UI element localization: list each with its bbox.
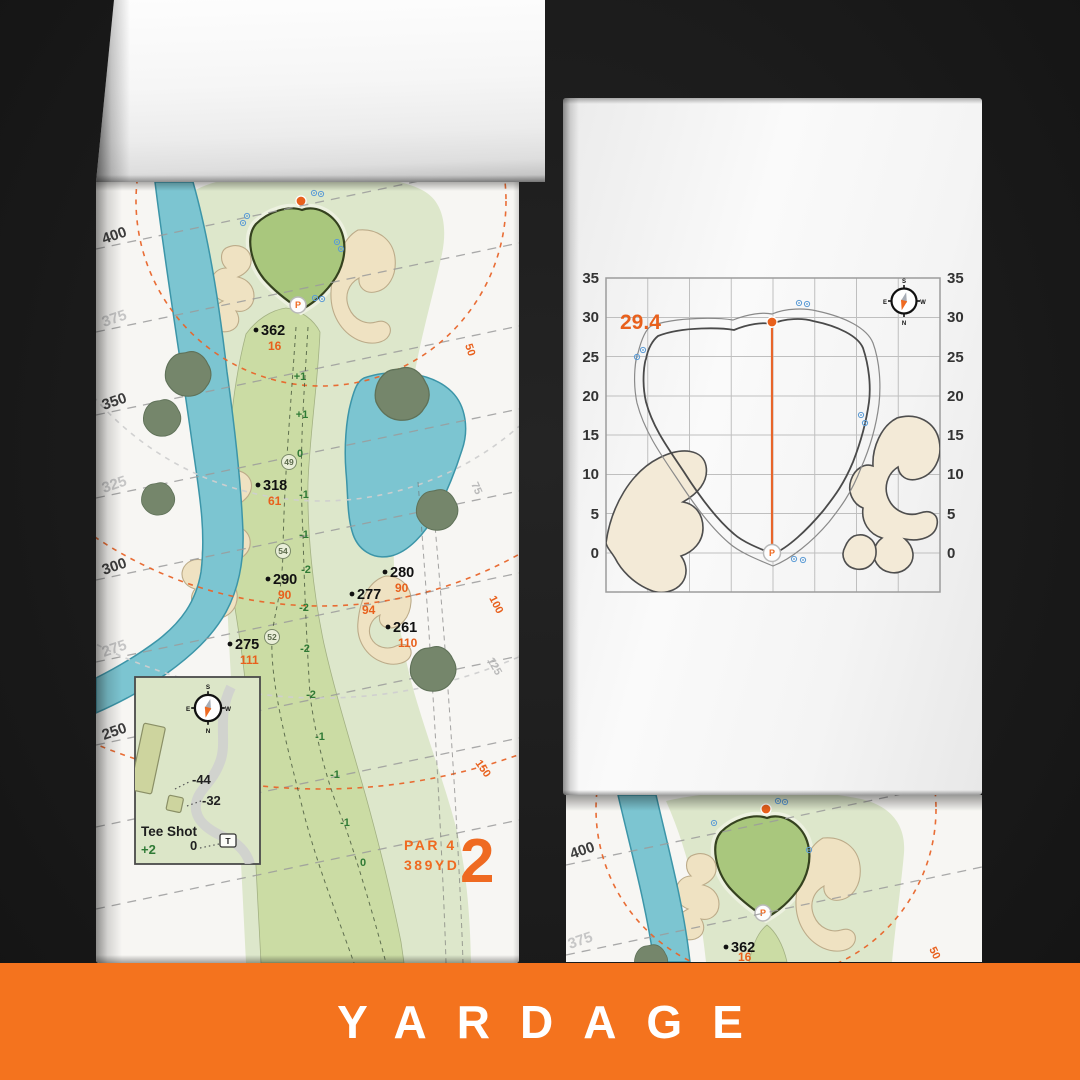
svg-text:52: 52 [267, 632, 277, 642]
left-page-spine-shadow [96, 0, 130, 182]
svg-text:-1: -1 [315, 731, 325, 743]
svg-text:15: 15 [947, 427, 964, 444]
hole-map-page: S N W E [96, 182, 519, 963]
carry-distance: 362 [261, 323, 285, 339]
distance-to-front: 16 [268, 339, 282, 353]
svg-text:+1: +1 [296, 409, 309, 421]
svg-text:-2: -2 [306, 689, 316, 701]
svg-text:0: 0 [297, 448, 303, 460]
distance-to-front: 94 [362, 603, 376, 617]
carry-distance: 275 [235, 637, 259, 653]
svg-text:30: 30 [582, 309, 599, 326]
preview-map: P 400 375 362 16 50 [566, 795, 982, 962]
axis-ticks-left: 35 30 25 20 15 10 5 0 [582, 270, 599, 562]
tee-carry-zero: 0 [190, 838, 197, 853]
svg-text:20: 20 [582, 388, 599, 405]
svg-text:0: 0 [360, 857, 366, 869]
carry-distance: 261 [393, 620, 417, 636]
hole-map: S N W E [96, 182, 519, 963]
tee-carry-back: -44 [192, 772, 212, 787]
svg-text:35: 35 [582, 270, 599, 287]
svg-text:15: 15 [582, 427, 599, 444]
pin-position-label: P [769, 548, 775, 558]
svg-text:25: 25 [947, 349, 964, 366]
svg-text:5: 5 [591, 506, 599, 523]
svg-text:-2: -2 [301, 564, 311, 576]
distance-to-front: 61 [268, 494, 282, 508]
tee-elevation-value: +2 [141, 842, 156, 857]
tee-box-forward [166, 795, 184, 813]
svg-text:-1: -1 [299, 529, 309, 541]
svg-text:35: 35 [947, 270, 964, 287]
svg-text:5: 5 [947, 506, 955, 523]
yardage-book-scene: S N W E [0, 0, 1080, 1080]
pin-position-label: P [295, 300, 301, 310]
svg-text:-2: -2 [299, 602, 309, 614]
carry-distance: 318 [263, 478, 287, 494]
svg-text:54: 54 [278, 546, 288, 556]
left-page-crease [96, 175, 545, 182]
svg-text:30: 30 [947, 309, 964, 326]
svg-text:25: 25 [582, 349, 599, 366]
left-page-fold [96, 0, 545, 182]
tee-shot-inset: T -44 -32 Tee Shot +2 0 [130, 677, 260, 864]
pin-position-label: P [760, 908, 766, 918]
banner-title: YARDAGE [307, 995, 773, 1049]
distance-to-front: 90 [278, 588, 292, 602]
svg-text:0: 0 [947, 545, 955, 562]
next-page-preview: P 400 375 362 16 50 [566, 795, 982, 962]
svg-text:49: 49 [284, 457, 294, 467]
pin-dot [767, 317, 777, 327]
compass-icon [883, 279, 926, 327]
hole-number: 2 [460, 827, 494, 896]
svg-text:-1: -1 [340, 817, 350, 829]
carry-distance: 280 [390, 565, 414, 581]
distance-to-front: 110 [398, 636, 418, 650]
yardage-banner: YARDAGE [0, 963, 1080, 1080]
svg-text:10: 10 [582, 466, 599, 483]
svg-text:0: 0 [591, 545, 599, 562]
tee-carry-forward: -32 [202, 793, 221, 808]
svg-text:10: 10 [947, 466, 964, 483]
distance-to-front: 90 [395, 581, 409, 595]
carry-distance: 290 [273, 572, 297, 588]
green-detail-page: P 29.4 35 30 25 20 15 10 5 0 35 [563, 98, 982, 795]
green-depth-chart: P 29.4 35 30 25 20 15 10 5 0 35 [563, 98, 982, 795]
svg-text:20: 20 [947, 388, 964, 405]
green-depth-value: 29.4 [620, 311, 661, 334]
svg-text:-1: -1 [299, 489, 309, 501]
axis-ticks-right: 35 30 25 20 15 10 5 0 [947, 270, 964, 562]
distance-to-front: 111 [240, 653, 259, 667]
hole-yardage: 389YD [404, 857, 459, 873]
svg-text:-2: -2 [300, 643, 310, 655]
tee-marker-letter: T [225, 836, 231, 846]
tee-inset-title: Tee Shot [141, 824, 198, 839]
svg-text:-1: -1 [330, 769, 340, 781]
svg-text:+1: +1 [294, 371, 307, 383]
par-label: PAR 4 [404, 837, 457, 853]
distance-to-front: 16 [738, 950, 752, 962]
carry-distance: 277 [357, 587, 381, 603]
